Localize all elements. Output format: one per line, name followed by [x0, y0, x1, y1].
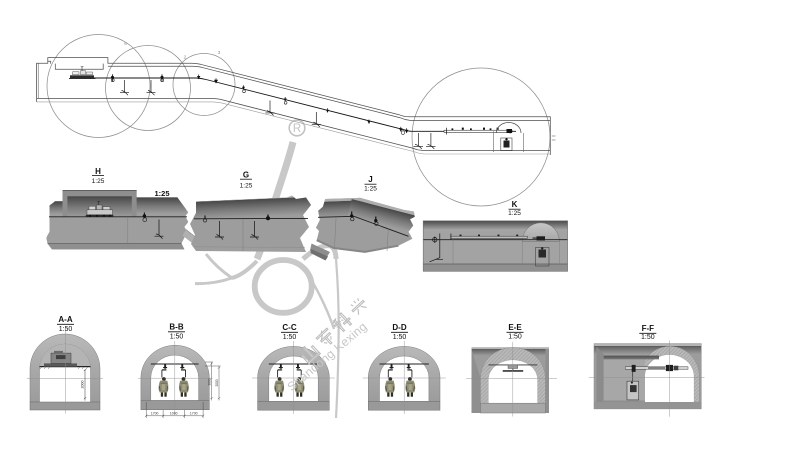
- svg-text:1:25: 1:25: [508, 210, 521, 217]
- svg-text:K: K: [512, 200, 518, 209]
- svg-text:D-D: D-D: [392, 323, 406, 332]
- svg-text:B-B: B-B: [169, 323, 183, 332]
- svg-text:1:25: 1:25: [240, 183, 253, 190]
- svg-text:1:50: 1:50: [283, 334, 297, 341]
- svg-text:1:50: 1:50: [59, 326, 73, 333]
- svg-text:2000: 2000: [215, 379, 219, 386]
- svg-text:1700: 1700: [190, 412, 198, 416]
- svg-text:F-F: F-F: [642, 324, 655, 333]
- svg-text:1:25: 1:25: [92, 178, 105, 185]
- svg-text:3000: 3000: [207, 378, 211, 385]
- svg-text:1:25: 1:25: [154, 189, 169, 198]
- svg-text:J: J: [368, 175, 372, 184]
- svg-text:A-A: A-A: [58, 315, 72, 324]
- svg-text:1700: 1700: [151, 412, 159, 416]
- svg-text:R: R: [293, 123, 301, 135]
- svg-text:1000: 1000: [170, 412, 178, 416]
- svg-text:G: G: [243, 171, 249, 180]
- svg-text:C-C: C-C: [282, 323, 296, 332]
- svg-text:E-E: E-E: [508, 323, 522, 332]
- svg-text:1:50: 1:50: [508, 334, 522, 341]
- svg-text:H: H: [95, 167, 101, 176]
- svg-text:1:25: 1:25: [364, 185, 377, 192]
- svg-text:1:50: 1:50: [170, 334, 184, 341]
- svg-text:2000: 2000: [81, 381, 85, 389]
- svg-text:1:50: 1:50: [393, 334, 407, 341]
- svg-text:1:50: 1:50: [641, 334, 655, 341]
